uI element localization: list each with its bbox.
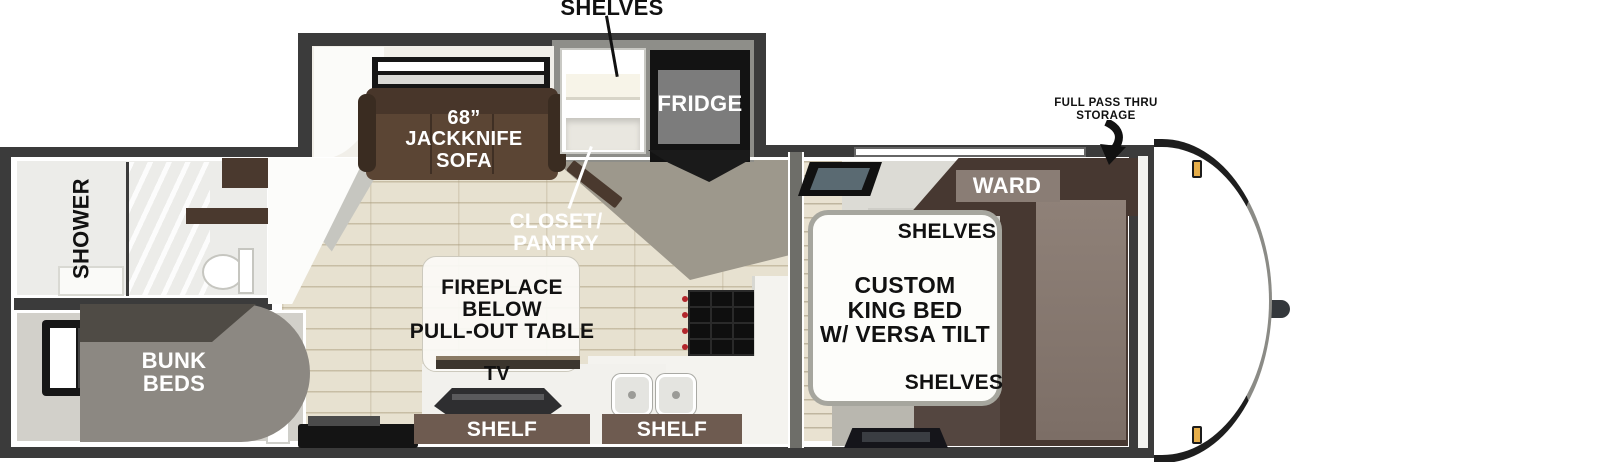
entry-step-upper xyxy=(308,416,380,426)
closet-lower-opening xyxy=(566,118,640,150)
sofa-window-pane-lower xyxy=(378,75,544,84)
wardrobe-door xyxy=(1036,200,1126,440)
king-bed xyxy=(808,210,1002,406)
wall-segment-bedroom-divider xyxy=(788,152,804,448)
stove-knob xyxy=(682,328,688,334)
sofa-cushion-seam xyxy=(430,114,432,174)
sofa-armrest-left xyxy=(358,94,376,172)
shelf-right-bar xyxy=(602,414,742,444)
toilet-tank xyxy=(238,248,254,294)
roof-vent-glass xyxy=(810,168,870,190)
floorplan-canvas: SHOWER BUNK BEDS 68” JACKKNIFE SOFA SHEL… xyxy=(0,0,1600,462)
shelves-cabinet-shelf xyxy=(566,74,640,100)
front-cap xyxy=(1154,139,1272,462)
wall-segment-bottom xyxy=(0,444,1160,458)
shelf-left-bar xyxy=(414,414,590,444)
ward-label-plate xyxy=(956,170,1060,202)
sofa-back-cushion xyxy=(366,88,558,114)
sofa-window-pane xyxy=(378,62,544,71)
marker-light-bottom xyxy=(1192,426,1202,444)
bunk-window xyxy=(50,328,76,388)
sofa-cushion-seam xyxy=(492,114,494,174)
stove-knob xyxy=(682,344,688,350)
stove-knob xyxy=(682,312,688,318)
wall-segment-slideout-left xyxy=(298,33,312,161)
bathroom-counter xyxy=(58,266,124,296)
front-wall-liner xyxy=(1138,156,1148,448)
down-arrow-icon xyxy=(1088,120,1132,166)
entry-step xyxy=(298,424,418,448)
fridge-door-panel xyxy=(658,70,740,144)
bedroom-step-tread xyxy=(862,432,930,442)
shelves-label: SHELVES xyxy=(548,0,676,18)
stove xyxy=(688,290,754,356)
shower-glass xyxy=(126,162,210,296)
bathroom-shelf xyxy=(186,208,268,224)
marker-light-top xyxy=(1192,160,1202,178)
fireplace-pullout-table xyxy=(422,256,580,372)
sink-drain xyxy=(628,391,636,399)
tv-screen-edge xyxy=(452,394,544,400)
stove-knob xyxy=(682,296,688,302)
bathroom-cabinet xyxy=(222,158,268,188)
sink-drain xyxy=(672,391,680,399)
table-edge xyxy=(436,360,580,369)
bedroom-window xyxy=(854,147,1086,157)
